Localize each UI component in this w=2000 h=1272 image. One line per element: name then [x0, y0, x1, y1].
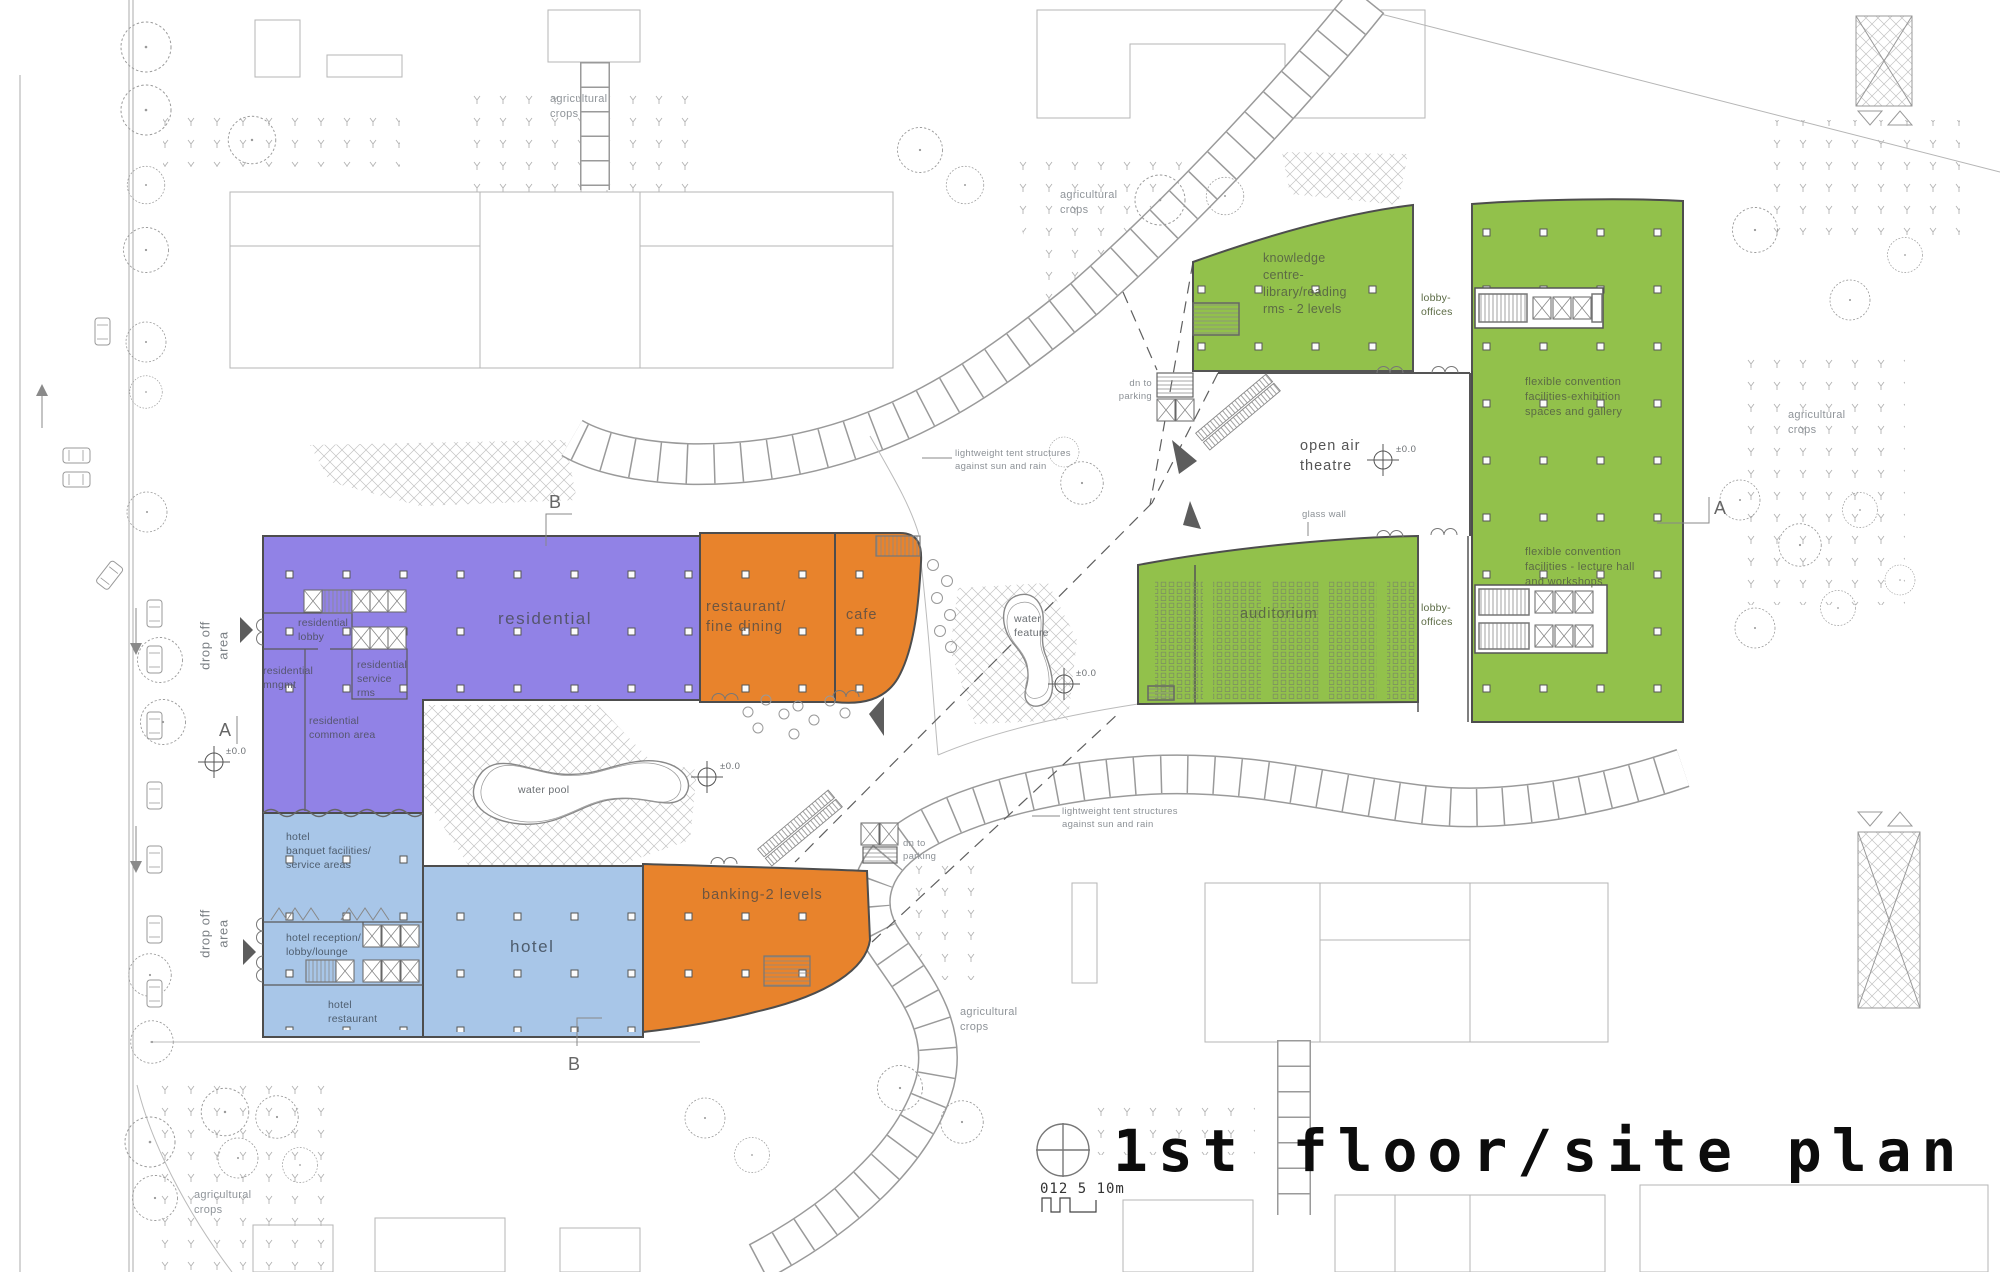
scale-bar-label: 012 5 10m — [1040, 1180, 1125, 1199]
section-marker-b-bottom: B — [568, 1052, 580, 1076]
residential-lobby-label: residential lobby — [298, 616, 348, 644]
cafe-label: cafe — [846, 606, 877, 626]
north-symbol — [1036, 1123, 1090, 1177]
hotel-restaurant-label: hotel restaurant — [328, 998, 377, 1026]
residential-common-label: residential common area — [309, 714, 375, 742]
hotel-banquet-label: hotel banquet facilities/ service areas — [286, 830, 371, 873]
crops-label-1: agricultural crops — [550, 92, 607, 122]
glass-wall-label: glass wall — [1302, 509, 1346, 522]
elevation-label-3: ±0.0 — [720, 761, 740, 774]
crops-label-2: agricultural crops — [1060, 188, 1117, 218]
knowledge-centre-label: knowledge centre- library/reading rms - … — [1263, 250, 1347, 318]
elevation-label-1: ±0.0 — [1396, 444, 1416, 457]
drawing-title: 1st floor/site plan — [1113, 1112, 1966, 1190]
crops-label-5: agricultural crops — [960, 1005, 1017, 1035]
crops-label-4: agricultural crops — [194, 1188, 251, 1218]
hotel-label: hotel — [510, 936, 554, 959]
elevation-label-4: ±0.0 — [226, 746, 246, 759]
water-pool-label: water pool — [518, 783, 569, 797]
residential-label: residential — [498, 608, 592, 631]
convention-lecture-label: flexible convention facilities - lecture… — [1525, 545, 1635, 590]
scale-bar — [1042, 1198, 1096, 1212]
restaurant-label: restaurant/ fine dining — [706, 598, 786, 637]
drop-off-label-2: drop off area — [196, 892, 231, 976]
dn-parking-label-1: dn to parking — [1090, 378, 1152, 404]
hotel-reception-label: hotel reception/ lobby/lounge — [286, 931, 361, 959]
banking-label: banking-2 levels — [702, 886, 823, 906]
cars — [63, 318, 162, 1007]
crops-label-3: agricultural crops — [1788, 408, 1845, 438]
lobby-offices-label-1: lobby- offices — [1421, 291, 1453, 319]
drop-off-label-1: drop off area — [196, 604, 231, 688]
water-feature-label: water feature — [1014, 612, 1049, 640]
dn-parking-label-2: dn to parking — [903, 838, 936, 864]
section-marker-a-right: A — [1714, 496, 1726, 520]
tent-label-2: lightweight tent structures against sun … — [1062, 806, 1178, 832]
auditorium-label: auditorium — [1240, 605, 1318, 625]
section-marker-b-top: B — [549, 490, 561, 514]
lobby-offices-label-2: lobby- offices — [1421, 601, 1453, 629]
section-marker-a-left: A — [219, 718, 231, 742]
tent-label-1: lightweight tent structures against sun … — [955, 448, 1071, 474]
open-air-theatre-label: open air theatre — [1300, 437, 1360, 476]
floor-plan-canvas: agricultural crops agricultural crops ag… — [0, 0, 2000, 1272]
convention-exhibition-label: flexible convention facilities-exhibitio… — [1525, 375, 1622, 420]
residential-service-label: residential service rms — [357, 658, 407, 701]
residential-mngmt-label: residential mngmt — [263, 664, 313, 692]
elevation-label-2: ±0.0 — [1076, 668, 1096, 681]
